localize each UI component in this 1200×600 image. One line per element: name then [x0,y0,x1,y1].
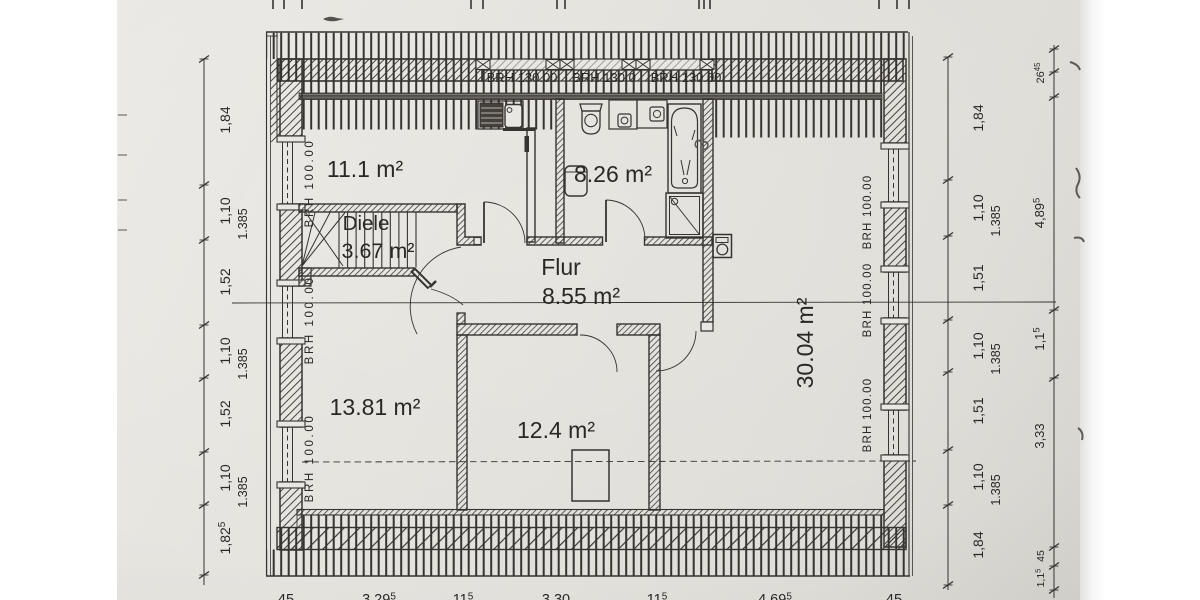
svg-text:1,10: 1,10 [217,464,233,491]
svg-text:30.04 m²: 30.04 m² [792,297,818,388]
svg-text:45: 45 [278,592,294,600]
svg-text:1,10: 1,10 [970,463,986,490]
svg-text:45: 45 [1035,550,1047,562]
svg-text:BRH 100.00: BRH 100.00 [304,276,316,365]
svg-text:1,10: 1,10 [970,194,986,221]
svg-text:BRH 100.00: BRH 100.00 [862,263,874,338]
svg-text:BRH 100.00: BRH 100.00 [304,414,316,503]
svg-text:3,33: 3,33 [1032,423,1047,448]
svg-text:45: 45 [886,592,902,600]
svg-text:1.385: 1.385 [989,205,1003,236]
svg-text:1.385: 1.385 [236,348,250,379]
svg-text:3.67 m²: 3.67 m² [342,239,415,263]
svg-text:1,51: 1,51 [970,397,986,424]
svg-text:1.385: 1.385 [989,343,1003,374]
svg-text:1,15: 1,15 [1031,327,1048,350]
svg-text:BRH 100.00: BRH 100.00 [862,378,874,453]
svg-text:1,15: 1,15 [1033,569,1047,588]
svg-text:115: 115 [647,592,668,600]
svg-text:1.385: 1.385 [989,474,1003,505]
svg-text:12.4 m²: 12.4 m² [517,417,595,443]
svg-text:Diele: Diele [343,212,390,235]
svg-text:8.26 m²: 8.26 m² [574,161,652,187]
svg-text:1,10: 1,10 [970,332,986,359]
svg-text:1,10: 1,10 [217,197,233,224]
svg-text:1,84: 1,84 [217,106,233,133]
svg-text:8.55 m²: 8.55 m² [542,283,620,309]
svg-text:2645: 2645 [1033,62,1047,84]
svg-text:1,10: 1,10 [217,337,233,364]
svg-text:3,30: 3,30 [542,592,570,600]
svg-text:4,895: 4,895 [1031,198,1048,229]
svg-text:1.385: 1.385 [236,208,250,239]
svg-text:1,84: 1,84 [970,104,986,131]
svg-text:11.1 m²: 11.1 m² [327,156,404,182]
svg-text:1,825: 1,825 [217,521,233,554]
svg-text:13.81 m²: 13.81 m² [330,394,421,420]
svg-text:1.385: 1.385 [236,476,250,507]
svg-text:1,52: 1,52 [217,400,233,427]
svg-text:1,84: 1,84 [970,531,986,558]
svg-text:4,695: 4,695 [758,592,792,600]
svg-text:1,52: 1,52 [217,268,233,295]
svg-text:115: 115 [453,592,474,600]
svg-text:3,295: 3,295 [362,592,396,600]
svg-text:BRH 100.00: BRH 100.00 [862,175,874,250]
svg-text:1,51: 1,51 [970,264,986,291]
svg-text:Flur: Flur [541,254,581,280]
